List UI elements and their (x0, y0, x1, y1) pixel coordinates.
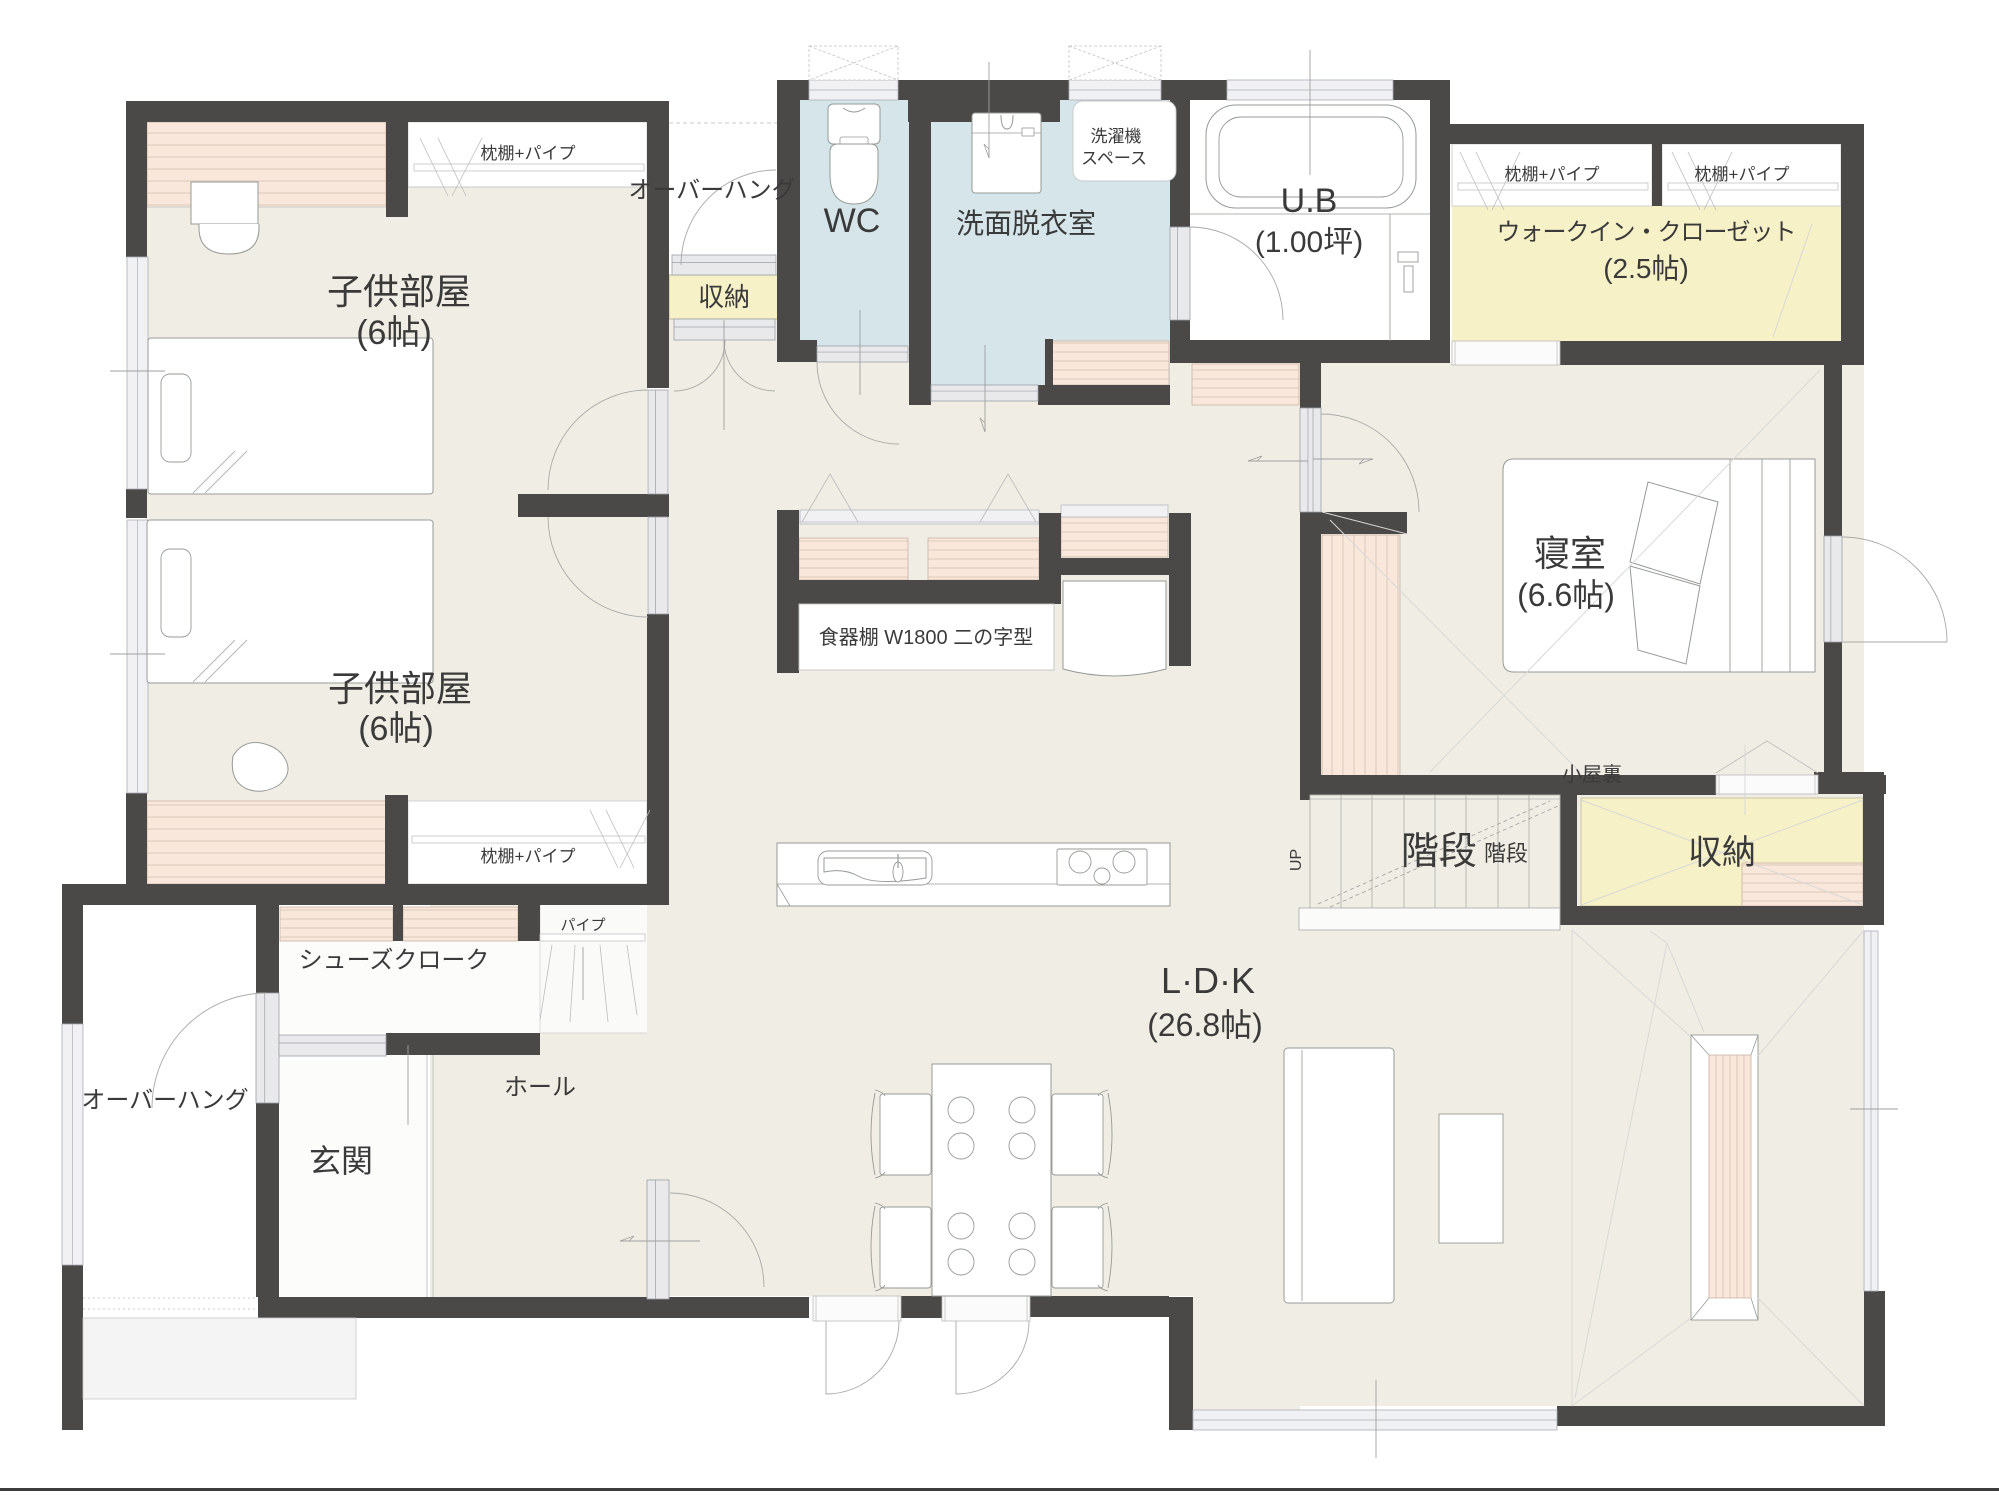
svg-text:食器棚 W1800 二の字型: 食器棚 W1800 二の字型 (819, 626, 1033, 649)
svg-text:スペース: スペース (1081, 149, 1147, 168)
svg-text:子供部屋: 子供部屋 (327, 271, 471, 312)
svg-text:オーバーハング: オーバーハング (628, 177, 795, 204)
svg-text:L·D·K: L·D·K (1161, 960, 1255, 1001)
svg-text:収納: 収納 (1688, 834, 1756, 872)
svg-text:U.B: U.B (1281, 182, 1338, 220)
svg-text:玄関: 玄関 (309, 1143, 373, 1179)
svg-text:ウォークイン・クローゼット: ウォークイン・クローゼット (1497, 219, 1796, 246)
svg-text:オーバーハング: オーバーハング (81, 1087, 248, 1114)
svg-text:階段: 階段 (1484, 841, 1528, 866)
svg-text:ホール: ホール (504, 1074, 576, 1101)
svg-text:階段: 階段 (1401, 831, 1477, 873)
svg-text:洗面脱衣室: 洗面脱衣室 (956, 208, 1096, 239)
svg-text:(6帖): (6帖) (358, 710, 434, 748)
svg-text:(6帖): (6帖) (356, 314, 432, 352)
svg-text:UP: UP (1288, 849, 1305, 871)
svg-text:収納: 収納 (698, 282, 750, 312)
svg-text:寝室: 寝室 (1534, 533, 1606, 574)
svg-text:枕棚+パイプ: 枕棚+パイプ (481, 847, 576, 866)
svg-text:(6.6帖): (6.6帖) (1517, 577, 1615, 613)
svg-text:枕棚+パイプ: 枕棚+パイプ (1505, 165, 1600, 184)
svg-text:(2.5帖): (2.5帖) (1603, 253, 1689, 284)
svg-text:WC: WC (824, 202, 881, 240)
svg-text:パイプ: パイプ (560, 917, 605, 934)
svg-text:小屋裏: 小屋裏 (1562, 763, 1622, 786)
svg-text:(1.00坪): (1.00坪) (1255, 226, 1363, 259)
svg-text:枕棚+パイプ: 枕棚+パイプ (481, 144, 576, 163)
svg-text:洗濯機: 洗濯機 (1091, 127, 1142, 146)
svg-text:子供部屋: 子供部屋 (328, 668, 472, 709)
svg-text:シューズクローク: シューズクローク (299, 947, 490, 974)
svg-text:(26.8帖): (26.8帖) (1147, 1007, 1263, 1043)
svg-text:枕棚+パイプ: 枕棚+パイプ (1695, 165, 1790, 184)
